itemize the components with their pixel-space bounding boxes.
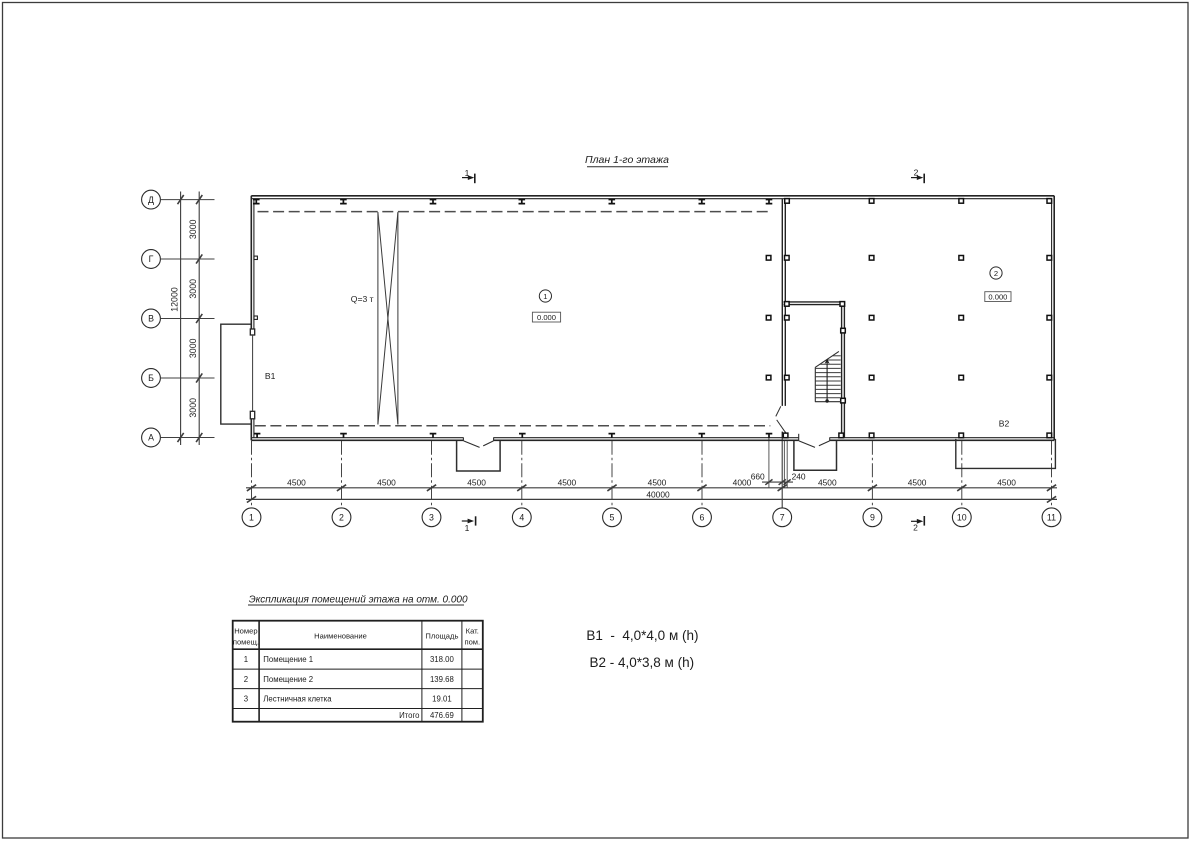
svg-text:2: 2 (244, 675, 248, 684)
svg-text:Лестничная клетка: Лестничная клетка (263, 695, 332, 704)
svg-text:Площадь: Площадь (425, 631, 458, 640)
svg-text:4500: 4500 (648, 477, 667, 487)
svg-text:А: А (148, 433, 154, 443)
svg-text:Итого: Итого (399, 711, 420, 720)
svg-text:3: 3 (429, 513, 434, 523)
svg-text:7: 7 (780, 513, 785, 523)
svg-text:В2 - 4,0*3,8 м (h): В2 - 4,0*3,8 м (h) (590, 655, 695, 670)
svg-text:Д: Д (148, 195, 154, 205)
svg-text:2: 2 (914, 168, 919, 178)
svg-text:1: 1 (543, 292, 547, 301)
svg-text:Номер: Номер (234, 627, 257, 636)
svg-text:Помещение 1: Помещение 1 (263, 655, 313, 664)
svg-text:5: 5 (610, 513, 615, 523)
svg-text:0.000: 0.000 (988, 292, 1007, 301)
svg-text:помещ.: помещ. (233, 638, 259, 647)
svg-text:пом.: пом. (464, 638, 480, 647)
svg-text:4500: 4500 (818, 477, 837, 487)
svg-text:240: 240 (792, 472, 806, 482)
svg-text:4: 4 (519, 513, 524, 523)
svg-text:3000: 3000 (188, 398, 198, 418)
svg-text:В2: В2 (999, 419, 1010, 429)
svg-text:Наименование: Наименование (314, 631, 367, 640)
svg-text:В1 - 4,0*4,0 м (h): В1 - 4,0*4,0 м (h) (586, 628, 698, 643)
svg-text:В: В (148, 314, 154, 324)
svg-text:Помещение 2: Помещение 2 (263, 675, 313, 684)
svg-text:2: 2 (339, 513, 344, 523)
svg-text:660: 660 (751, 472, 765, 482)
svg-text:6: 6 (700, 513, 705, 523)
svg-text:В1: В1 (265, 371, 276, 381)
svg-text:19.01: 19.01 (432, 695, 452, 704)
svg-text:1: 1 (244, 655, 248, 664)
svg-text:Кат.: Кат. (466, 627, 479, 636)
svg-text:1: 1 (249, 513, 254, 523)
svg-text:3: 3 (244, 695, 248, 704)
svg-text:139.68: 139.68 (430, 675, 454, 684)
svg-text:318.00: 318.00 (430, 655, 455, 664)
svg-text:Экспликация помещений этажа на: Экспликация помещений этажа на отм. 0.00… (249, 594, 468, 605)
svg-text:Q=3 т: Q=3 т (351, 294, 374, 304)
svg-text:4500: 4500 (908, 477, 927, 487)
svg-text:1: 1 (465, 168, 470, 178)
svg-text:3000: 3000 (188, 338, 198, 358)
svg-text:0.000: 0.000 (537, 313, 556, 322)
svg-text:476.69: 476.69 (430, 711, 454, 720)
svg-text:4500: 4500 (287, 477, 306, 487)
svg-text:4500: 4500 (467, 477, 486, 487)
svg-text:1: 1 (465, 523, 470, 533)
svg-text:2: 2 (994, 269, 998, 278)
svg-text:4500: 4500 (997, 477, 1016, 487)
svg-text:4000: 4000 (733, 477, 752, 487)
svg-text:10: 10 (957, 513, 967, 523)
svg-text:40000: 40000 (646, 490, 670, 500)
svg-text:Г: Г (149, 254, 154, 264)
svg-text:3000: 3000 (188, 279, 198, 299)
svg-text:План 1-го этажа: План 1-го этажа (585, 154, 669, 166)
svg-text:Б: Б (148, 373, 154, 383)
svg-text:11: 11 (1047, 513, 1056, 523)
svg-text:3000: 3000 (188, 219, 198, 239)
svg-text:4500: 4500 (377, 477, 396, 487)
svg-text:9: 9 (870, 513, 875, 523)
svg-text:4500: 4500 (558, 477, 577, 487)
svg-text:2: 2 (913, 523, 918, 533)
svg-text:12000: 12000 (170, 287, 180, 312)
